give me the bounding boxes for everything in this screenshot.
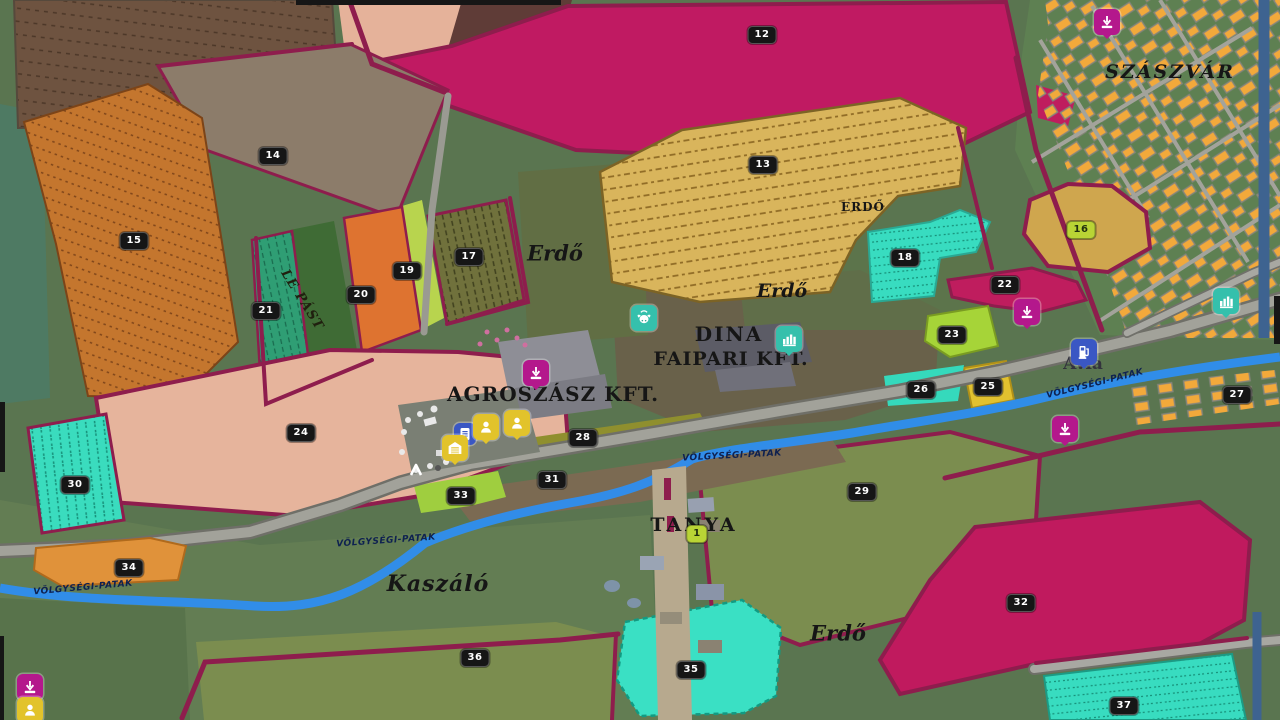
field-28-badge[interactable]: 28 (569, 429, 598, 447)
forest-label: Erdő (810, 621, 866, 646)
field-33-badge[interactable]: 33 (447, 487, 476, 505)
field-35-badge[interactable]: 35 (677, 661, 706, 679)
sawmill-label-line1: DINA (695, 322, 764, 346)
sell-point-icon[interactable] (1094, 9, 1120, 35)
town-label: SZÁSZVÁR (1105, 61, 1235, 83)
field-13-badge[interactable]: 13 (749, 156, 778, 174)
icon-pointer (512, 435, 522, 445)
factory-icon[interactable] (776, 326, 802, 352)
field-1-badge[interactable]: 1 (686, 525, 707, 543)
field-34[interactable] (34, 538, 186, 586)
farm-company-label: AGROSZÁSZ KFT. (447, 382, 659, 406)
tanya-road (652, 466, 692, 720)
field-37-badge[interactable]: 37 (1110, 697, 1139, 715)
player-arrow-icon (408, 462, 424, 482)
field-36-badge[interactable]: 36 (461, 649, 490, 667)
sell-point-icon[interactable] (1014, 299, 1040, 325)
icon-pointer (481, 439, 491, 449)
field-21-badge[interactable]: 21 (252, 302, 281, 320)
field-14-badge[interactable]: 14 (259, 147, 288, 165)
field-19-badge[interactable]: 19 (393, 262, 422, 280)
field-32-badge[interactable]: 32 (1007, 594, 1036, 612)
person-icon[interactable] (504, 410, 530, 436)
field-17-badge[interactable]: 17 (455, 248, 484, 266)
icon-pointer (1102, 34, 1112, 44)
sell-point-icon[interactable] (523, 360, 549, 386)
field-24-badge[interactable]: 24 (287, 424, 316, 442)
icon-pointer (1060, 441, 1070, 451)
icon-pointer (1079, 364, 1089, 374)
icon-pointer (1221, 313, 1231, 323)
field-20-badge[interactable]: 20 (347, 286, 376, 304)
person-icon[interactable] (17, 697, 43, 720)
field-12-badge[interactable]: 12 (748, 26, 777, 44)
fuel-icon[interactable] (1071, 339, 1097, 365)
sell-point-icon[interactable] (1052, 416, 1078, 442)
person-icon[interactable] (473, 414, 499, 440)
field-23-badge[interactable]: 23 (938, 326, 967, 344)
field-30[interactable] (28, 414, 124, 533)
field-16-badge[interactable]: 16 (1067, 221, 1096, 239)
forest-label: Erdő (527, 241, 583, 266)
field-34-badge[interactable]: 34 (115, 559, 144, 577)
icon-pointer (531, 385, 541, 395)
field-22-badge[interactable]: 22 (991, 276, 1020, 294)
field-31-badge[interactable]: 31 (538, 471, 567, 489)
field-18-badge[interactable]: 18 (891, 249, 920, 267)
field-26-badge[interactable]: 26 (907, 381, 936, 399)
icon-pointer (450, 460, 460, 470)
garage-icon[interactable] (442, 435, 468, 461)
field-27-badge[interactable]: 27 (1223, 386, 1252, 404)
field-25-badge[interactable]: 25 (974, 378, 1003, 396)
forest-label: ERDŐ (841, 200, 885, 214)
field-15-badge[interactable]: 15 (120, 232, 149, 250)
icon-pointer (784, 351, 794, 361)
field-29-badge[interactable]: 29 (848, 483, 877, 501)
cow-icon[interactable] (631, 305, 657, 331)
forest-label: Erdő (757, 280, 807, 302)
meadow-label: Kaszáló (387, 571, 490, 597)
field-30-badge[interactable]: 30 (61, 476, 90, 494)
factory-icon[interactable] (1213, 288, 1239, 314)
icon-pointer (1022, 324, 1032, 334)
game-map[interactable]: SZÁSZVÁR DINA FAIPARI KFT. AGROSZÁSZ KFT… (0, 0, 1280, 720)
